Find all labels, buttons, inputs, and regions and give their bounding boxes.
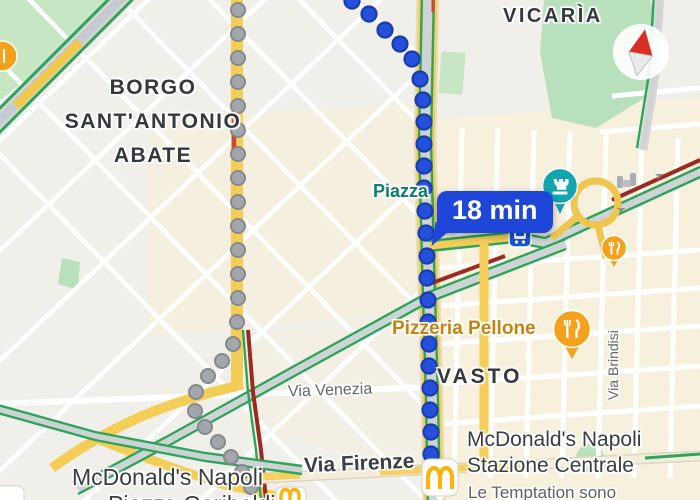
route-duration-text: 18 min (452, 195, 538, 225)
street-label-via-brindisi: Via Brindisi (605, 310, 621, 420)
map-labels: VICARÌA BORGO SANT'ANTONIO ABATE VASTO P… (0, 0, 700, 500)
region-label-borgo-line2: SANT'ANTONIO (22, 105, 284, 139)
region-label-vicaria: VICARÌA (503, 5, 603, 28)
map-view[interactable]: VICARÌA BORGO SANT'ANTONIO ABATE VASTO P… (0, 0, 700, 500)
poi-label-mcdonalds-central-line2[interactable]: Stazione Centrale (467, 454, 634, 478)
route-duration-badge[interactable]: 18 min (437, 191, 553, 233)
poi-label-pizzeria-pellone[interactable]: Pizzeria Pellone (392, 318, 536, 340)
street-label-via-venezia: Via Venezia (288, 381, 373, 402)
street-label-via-firenze: Via Firenze (304, 450, 415, 479)
region-label-vasto: VASTO (437, 365, 522, 389)
region-label-borgo-line3: ABATE (22, 139, 284, 173)
poi-label-mcdonalds-garibaldi-line1[interactable]: McDonald's Napoli (72, 464, 263, 491)
poi-label-mcdonalds-central-review: Le Temptation sono (468, 483, 616, 500)
poi-label-piazza[interactable]: Piazza (373, 181, 428, 202)
poi-label-mcdonalds-central-line1[interactable]: McDonald's Napoli (467, 428, 641, 452)
region-label-borgo: BORGO SANT'ANTONIO ABATE (22, 71, 284, 173)
poi-label-mcdonalds-garibaldi-line2[interactable]: Piazza Garibaldi (108, 491, 275, 500)
region-label-borgo-line1: BORGO (22, 71, 284, 105)
